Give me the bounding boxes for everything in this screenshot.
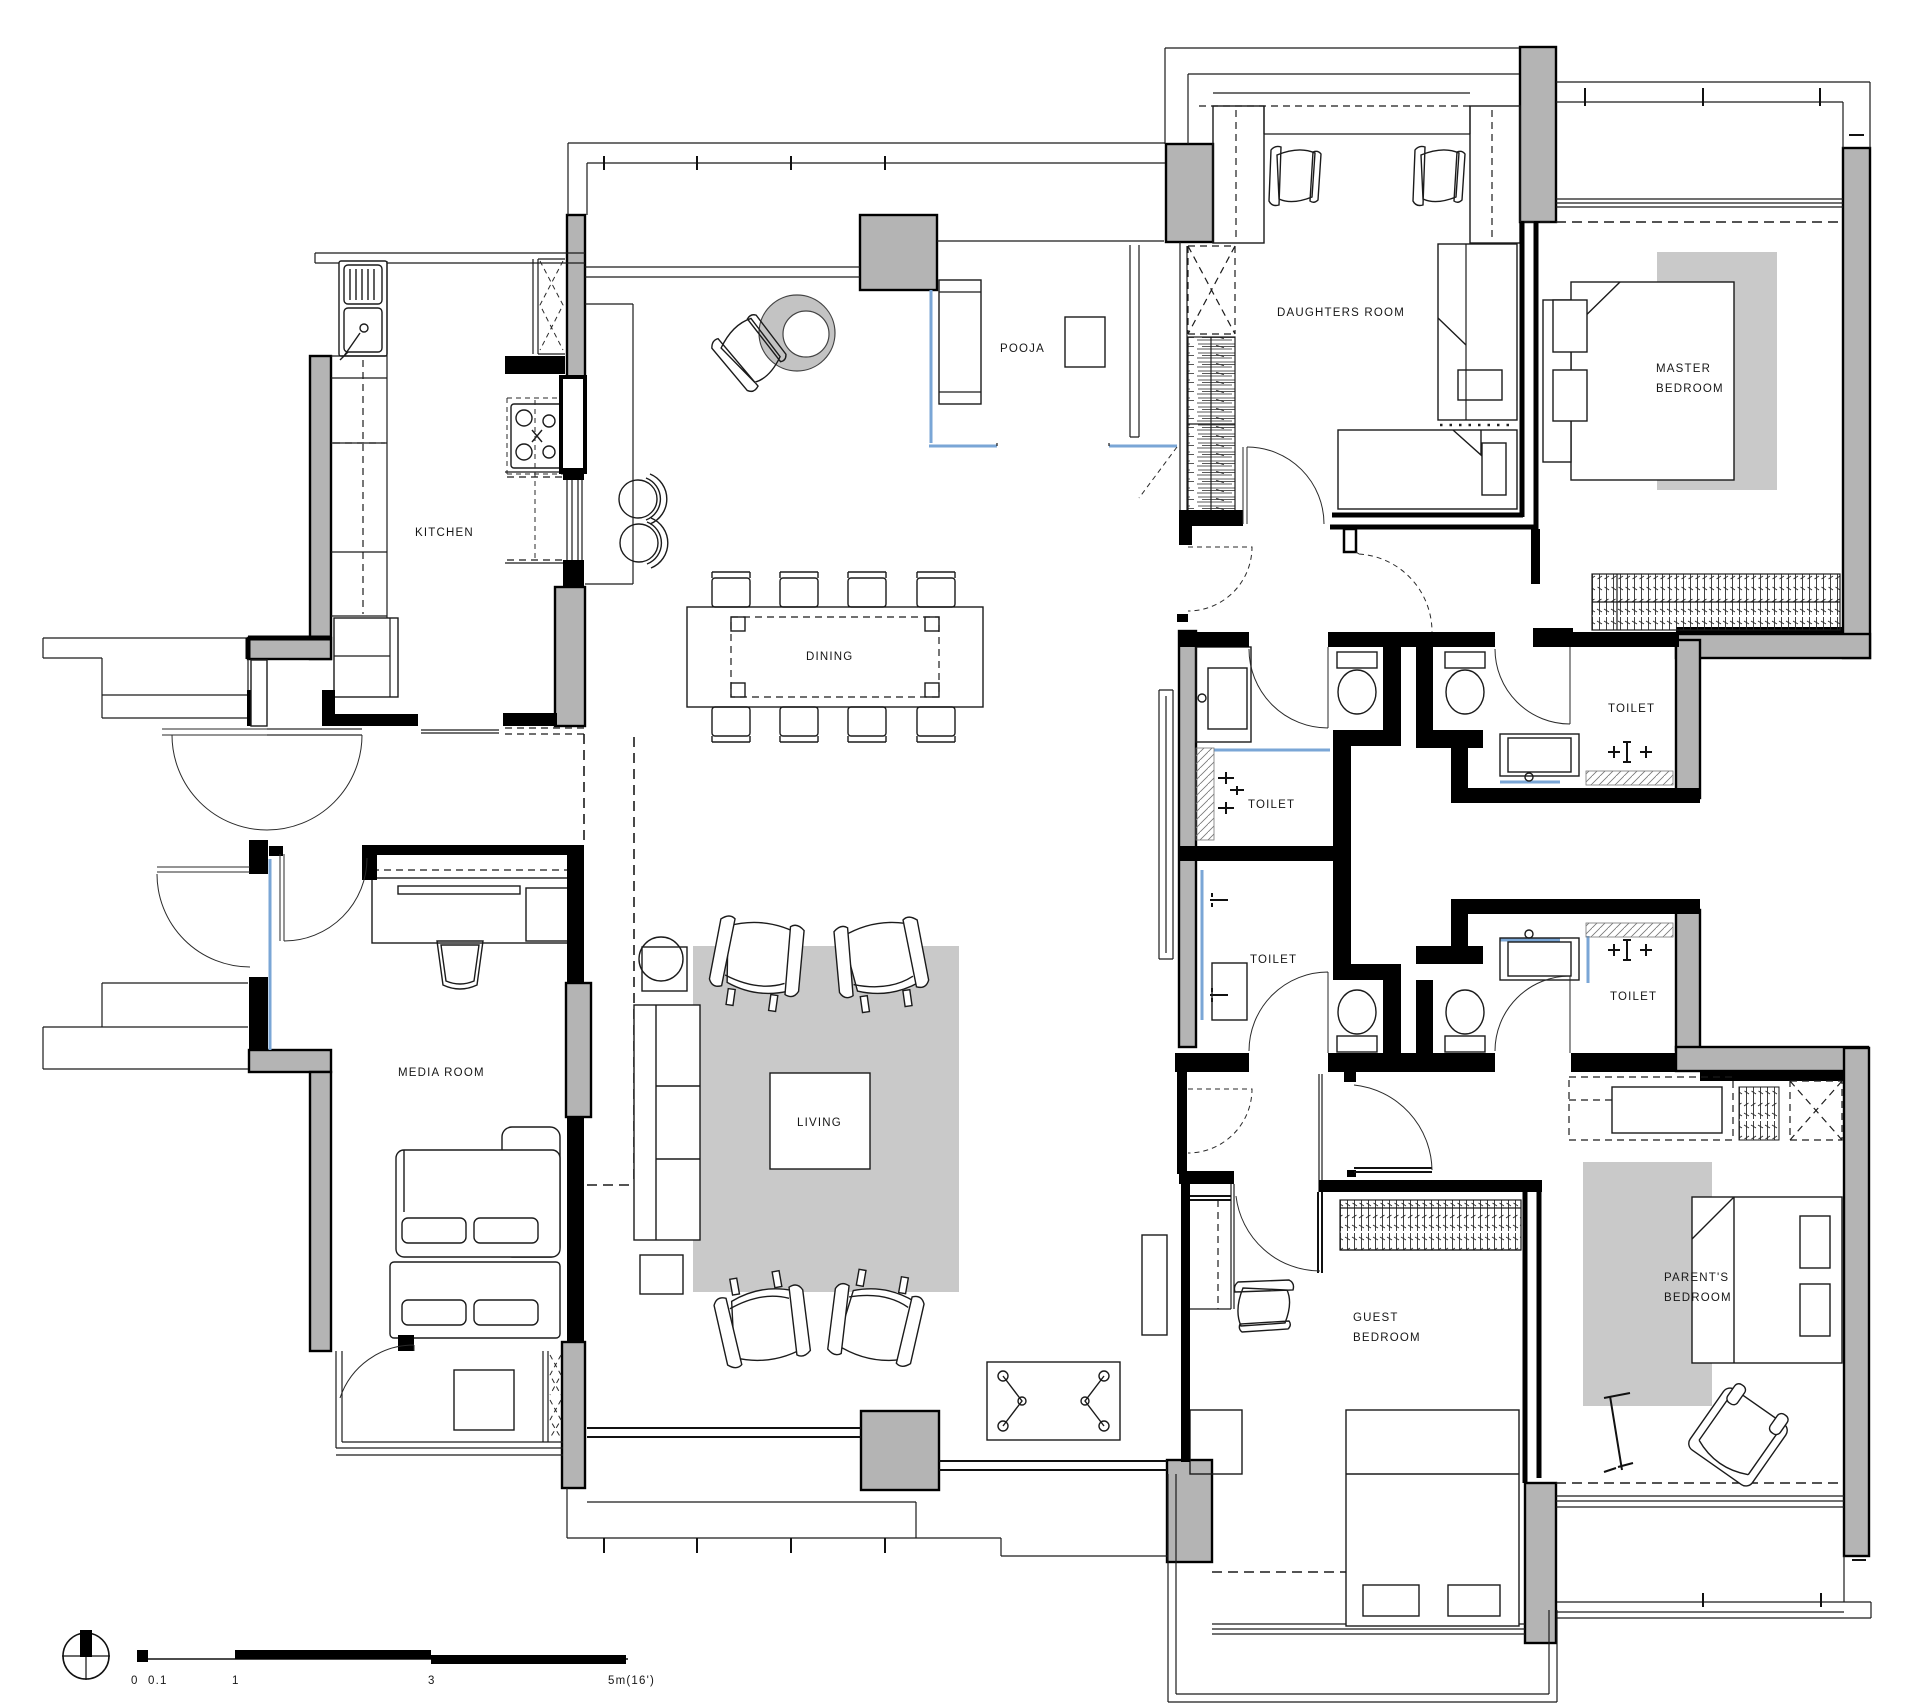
svg-text:GUEST: GUEST bbox=[1353, 1312, 1399, 1324]
svg-text:DINING: DINING bbox=[806, 651, 853, 663]
svg-text:DAUGHTERS ROOM: DAUGHTERS ROOM bbox=[1277, 307, 1405, 319]
svg-text:MASTER: MASTER bbox=[1656, 363, 1711, 375]
svg-text:TOILET: TOILET bbox=[1608, 703, 1655, 715]
svg-text:MEDIA ROOM: MEDIA ROOM bbox=[398, 1067, 485, 1079]
svg-text:BEDROOM: BEDROOM bbox=[1656, 383, 1724, 395]
svg-text:BEDROOM: BEDROOM bbox=[1353, 1332, 1421, 1344]
svg-text:0.1: 0.1 bbox=[148, 1675, 168, 1687]
svg-text:TOILET: TOILET bbox=[1250, 954, 1297, 966]
svg-text:BEDROOM: BEDROOM bbox=[1664, 1292, 1732, 1304]
svg-text:5m(16'): 5m(16') bbox=[608, 1675, 655, 1687]
svg-text:KITCHEN: KITCHEN bbox=[415, 527, 474, 539]
svg-text:1: 1 bbox=[232, 1675, 240, 1687]
svg-text:LIVING: LIVING bbox=[797, 1117, 842, 1129]
svg-text:POOJA: POOJA bbox=[1000, 343, 1045, 355]
svg-text:3: 3 bbox=[428, 1675, 436, 1687]
svg-text:TOILET: TOILET bbox=[1248, 799, 1295, 811]
svg-text:0: 0 bbox=[131, 1675, 139, 1687]
svg-text:TOILET: TOILET bbox=[1610, 991, 1657, 1003]
svg-text:PARENT'S: PARENT'S bbox=[1664, 1272, 1729, 1284]
